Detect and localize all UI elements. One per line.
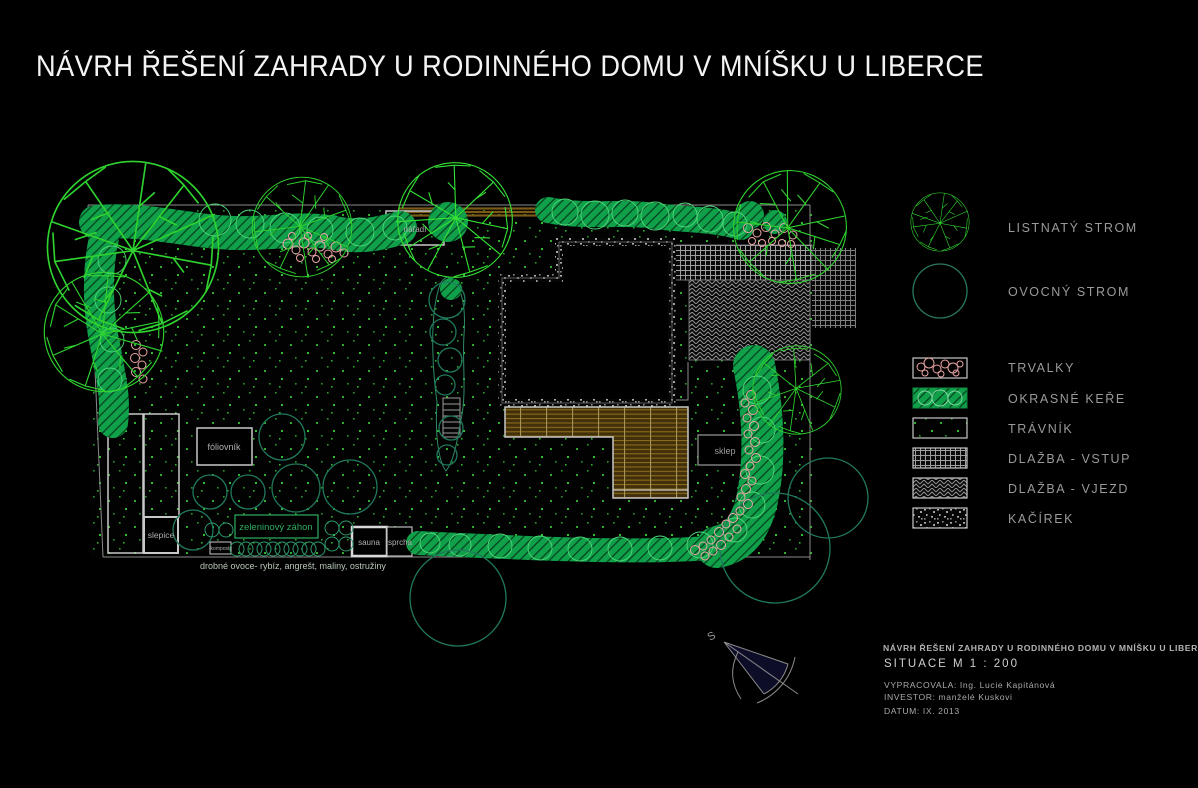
title-block-project: NÁVRH ŘEŠENÍ ZAHRADY U RODINNÉHO DOMU V … (883, 642, 1198, 653)
legend-label-paving-entrance: DLAŽBA - VSTUP (1008, 451, 1131, 466)
legend-lawn-swatch (913, 418, 967, 438)
legend-label-pebble-gravel: KAČÍREK (1008, 511, 1074, 526)
title-block-investor: INVESTOR: manželé Kuskovi (884, 692, 1013, 702)
legend-label-fruit-tree: OVOCNÝ STROM (1008, 284, 1130, 299)
legend-shrubs-swatch (913, 388, 967, 408)
title-block-date: DATUM: IX. 2013 (884, 706, 960, 716)
legend-perennials-swatch (913, 358, 967, 378)
legend-label-ornamental-shrubs: OKRASNÉ KEŘE (1008, 391, 1126, 406)
legend-label-deciduous-tree: LISTNATÝ STROM (1008, 220, 1138, 235)
plan-drawing: S nářadí fóliovník slepice kompost zelen… (0, 0, 1198, 788)
vegetable-bed-label: zeleninový záhon (239, 522, 312, 533)
title-block: NÁVRH ŘEŠENÍ ZAHRADY U RODINNÉHO DOMU V … (883, 642, 1198, 716)
hen-house-label: slepice (148, 530, 175, 540)
garden-plan: S nářadí fóliovník slepice kompost zelen… (20, 147, 868, 703)
cellar-label: sklep (714, 446, 735, 456)
north-label: S (706, 630, 718, 644)
garden-plan-canvas: S nářadí fóliovník slepice kompost zelen… (0, 0, 1198, 788)
north-arrow: S (706, 630, 799, 703)
greenhouse-label: fóliovník (207, 442, 241, 452)
legend-label-lawn: TRÁVNÍK (1008, 421, 1073, 436)
title-block-author: VYPRACOVALA: Ing. Lucie Kapitánová (884, 680, 1055, 690)
legend-deciduous-tree-symbol (911, 193, 969, 251)
title-block-drawing: SITUACE M 1 : 200 (884, 658, 1019, 670)
legend-fruit-tree-symbol (913, 264, 967, 318)
shower-label: sprcha (388, 538, 413, 547)
tool-shed-label: nářadí (404, 225, 427, 234)
legend-paving-driveway-swatch (913, 478, 967, 498)
legend-pebble-swatch (913, 508, 967, 528)
sauna-label: sauna (358, 538, 380, 547)
small-fruit-label: drobné ovoce- rybíz, angrešt, maliny, os… (200, 561, 386, 571)
legend-paving-entrance-swatch (913, 448, 967, 468)
legend: LISTNATÝ STROM OVOCNÝ STROM TRVALKY OKRA… (911, 193, 1138, 528)
page-title: NÁVRH ŘEŠENÍ ZAHRADY U RODINNÉHO DOMU V … (36, 49, 984, 83)
legend-label-perennials: TRVALKY (1008, 361, 1075, 375)
legend-label-paving-driveway: DLAŽBA - VJEZD (1008, 481, 1129, 496)
compost-label: kompost (211, 546, 231, 552)
